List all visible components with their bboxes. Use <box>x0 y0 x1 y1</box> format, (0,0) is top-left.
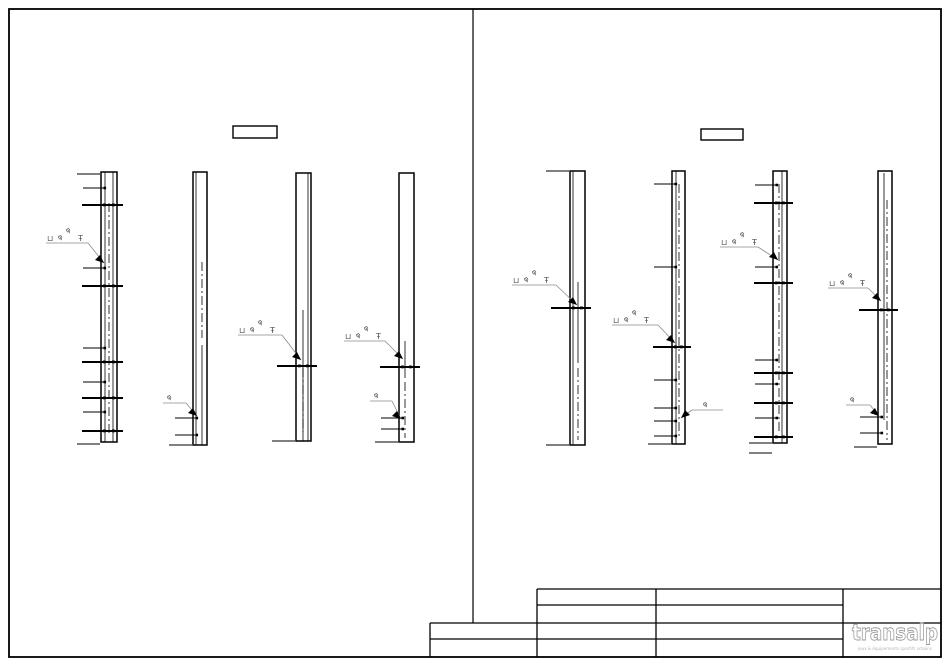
stirrup-dot-left <box>103 397 106 400</box>
rebar-tick-dot <box>776 184 779 187</box>
stirrup-dot-right <box>409 366 412 369</box>
callout-bracket-symbol: ⊔ <box>613 316 619 325</box>
rebar-tick-dot <box>402 428 405 431</box>
callout-phi-symbol: φ <box>522 274 530 283</box>
callout-bracket-symbol: ⊔ <box>513 276 519 285</box>
stirrup-dot-left <box>103 204 106 207</box>
callout-tbar-symbol: Ŧ <box>375 332 381 341</box>
callout-phi-symbol: φ <box>248 324 256 333</box>
rebar-tick-dot <box>776 359 779 362</box>
column-elevation-5 <box>546 171 591 445</box>
stirrup-dot-left <box>674 346 677 349</box>
rebar-callout-3: ⊔φφŦ <box>344 323 403 359</box>
rebar-callout-1: ⊔φφŦ <box>46 225 104 263</box>
callout-tbar-symbol: Ŧ <box>543 276 549 285</box>
stirrup-dot-right <box>112 430 115 433</box>
drawing-sheet: ⊔φφŦ⊔φφŦ⊔φφŦ⊔φφŦ⊔φφŦ⊔φφŦ⊔φφŦφφφφtransalp… <box>0 0 950 667</box>
stirrup-dot-left <box>103 430 106 433</box>
callout-tbar-symbol: Ŧ <box>643 316 649 325</box>
stirrup-dot-right <box>680 346 683 349</box>
rebar-callout-4: ⊔φφŦ <box>512 267 577 305</box>
callout-phi-symbol: φ <box>165 392 173 401</box>
stirrup-dot-right <box>112 204 115 207</box>
callout-bracket-symbol: ⊔ <box>47 234 53 243</box>
callout-phi-symbol: φ <box>846 270 854 279</box>
rebar-tick-dot <box>675 435 678 438</box>
rebar-callout-7: ⊔φφŦ <box>828 270 881 301</box>
stirrup-dot-left <box>103 285 106 288</box>
callout-phi-symbol: φ <box>622 314 630 323</box>
column-elevation-8 <box>854 171 898 447</box>
cad-drawing: ⊔φφŦ⊔φφŦ⊔φφŦ⊔φφŦ⊔φφŦ⊔φφŦ⊔φφŦφφφφtransalp… <box>0 0 950 667</box>
rebar-tick-dot <box>675 266 678 269</box>
rebar-tick-dot <box>776 266 779 269</box>
rebar-tick-dot <box>104 411 107 414</box>
rebar-tick-dot <box>776 417 779 420</box>
rebar-tick-dot <box>881 416 884 419</box>
callout-bracket-symbol: ⊔ <box>345 332 351 341</box>
stirrup-dot-right <box>887 309 890 312</box>
stirrup-dot-left <box>775 202 778 205</box>
callout-phi-symbol: φ <box>738 229 746 238</box>
stirrup-dot-right <box>782 282 785 285</box>
callout-phi-symbol: φ <box>530 267 538 276</box>
column-elevation-4 <box>375 173 420 442</box>
rebar-tick-dot <box>675 183 678 186</box>
callout-phi-symbol: φ <box>362 323 370 332</box>
callout-tbar-symbol: Ŧ <box>751 238 757 247</box>
stirrup-dot-right <box>580 307 583 310</box>
page-border <box>9 9 941 657</box>
callout-phi-symbol: φ <box>630 307 638 316</box>
stirrup-dot-left <box>775 436 778 439</box>
column-outline <box>878 171 892 444</box>
view-label-box-2 <box>701 129 743 140</box>
column-elevation-2 <box>169 172 207 445</box>
stirrup-dot-right <box>306 365 309 368</box>
column-elevation-1 <box>77 172 123 444</box>
stirrup-dot-left <box>401 366 404 369</box>
stirrup-dot-right <box>112 361 115 364</box>
rebar-tick-dot <box>402 417 405 420</box>
stirrup-dot-left <box>103 361 106 364</box>
column-outline <box>672 171 685 444</box>
rebar-tick-dot <box>104 381 107 384</box>
callout-phi-symbol: φ <box>701 399 709 408</box>
stirrup-dot-right <box>782 372 785 375</box>
rebar-tick-dot <box>675 407 678 410</box>
callout-phi-symbol: φ <box>64 225 72 234</box>
rebar-tick-dot <box>776 383 779 386</box>
transalp-logo: transalp <box>852 621 938 646</box>
column-outline <box>193 172 207 445</box>
stirrup-dot-right <box>782 436 785 439</box>
callout-bracket-symbol: ⊔ <box>239 326 245 335</box>
column-outline <box>399 173 414 442</box>
stirrup-dot-left <box>298 365 301 368</box>
callout-bracket-symbol: ⊔ <box>721 238 727 247</box>
rebar-callout-2: ⊔φφŦ <box>238 317 301 360</box>
transalp-logo-tagline: jeux & équipements sportifs urbains <box>857 646 932 651</box>
stirrup-dot-left <box>775 282 778 285</box>
callout-phi-symbol: φ <box>848 394 856 403</box>
column-elevation-6 <box>648 171 691 444</box>
callout-phi-symbol: φ <box>838 277 846 286</box>
callout-tbar-symbol: Ŧ <box>859 279 865 288</box>
rebar-tick-dot <box>104 187 107 190</box>
rebar-callout-5: ⊔φφŦ <box>612 307 675 343</box>
rebar-tick-dot <box>881 432 884 435</box>
rebar-callout-10: φ <box>681 399 723 418</box>
stirrup-dot-right <box>112 285 115 288</box>
stirrup-dot-right <box>782 202 785 205</box>
callout-tbar-symbol: Ŧ <box>77 234 83 243</box>
stirrup-dot-right <box>782 402 785 405</box>
callout-phi-symbol: φ <box>354 330 362 339</box>
column-elevation-7 <box>749 171 793 453</box>
column-outline <box>296 173 311 441</box>
rebar-tick-dot <box>196 417 199 420</box>
stirrup-dot-left <box>775 402 778 405</box>
callout-phi-symbol: φ <box>256 317 264 326</box>
rebar-callout-8: φ <box>163 392 197 416</box>
callout-phi-symbol: φ <box>372 390 380 399</box>
rebar-tick-dot <box>104 267 107 270</box>
view-label-box-1 <box>233 126 277 138</box>
rebar-tick-dot <box>196 434 199 437</box>
stirrup-dot-right <box>112 397 115 400</box>
callout-tbar-symbol: Ŧ <box>269 326 275 335</box>
rebar-callout-11: φ <box>846 394 879 416</box>
column-elevation-3 <box>272 173 317 441</box>
callout-phi-symbol: φ <box>730 236 738 245</box>
stirrup-dot-left <box>572 307 575 310</box>
stirrup-dot-left <box>775 372 778 375</box>
callout-phi-symbol: φ <box>56 232 64 241</box>
rebar-tick-dot <box>104 347 107 350</box>
rebar-callout-6: ⊔φφŦ <box>720 229 778 260</box>
rebar-callout-9: φ <box>370 390 401 419</box>
rebar-tick-dot <box>675 420 678 423</box>
rebar-tick-dot <box>675 379 678 382</box>
callout-bracket-symbol: ⊔ <box>829 279 835 288</box>
stirrup-dot-left <box>880 309 883 312</box>
